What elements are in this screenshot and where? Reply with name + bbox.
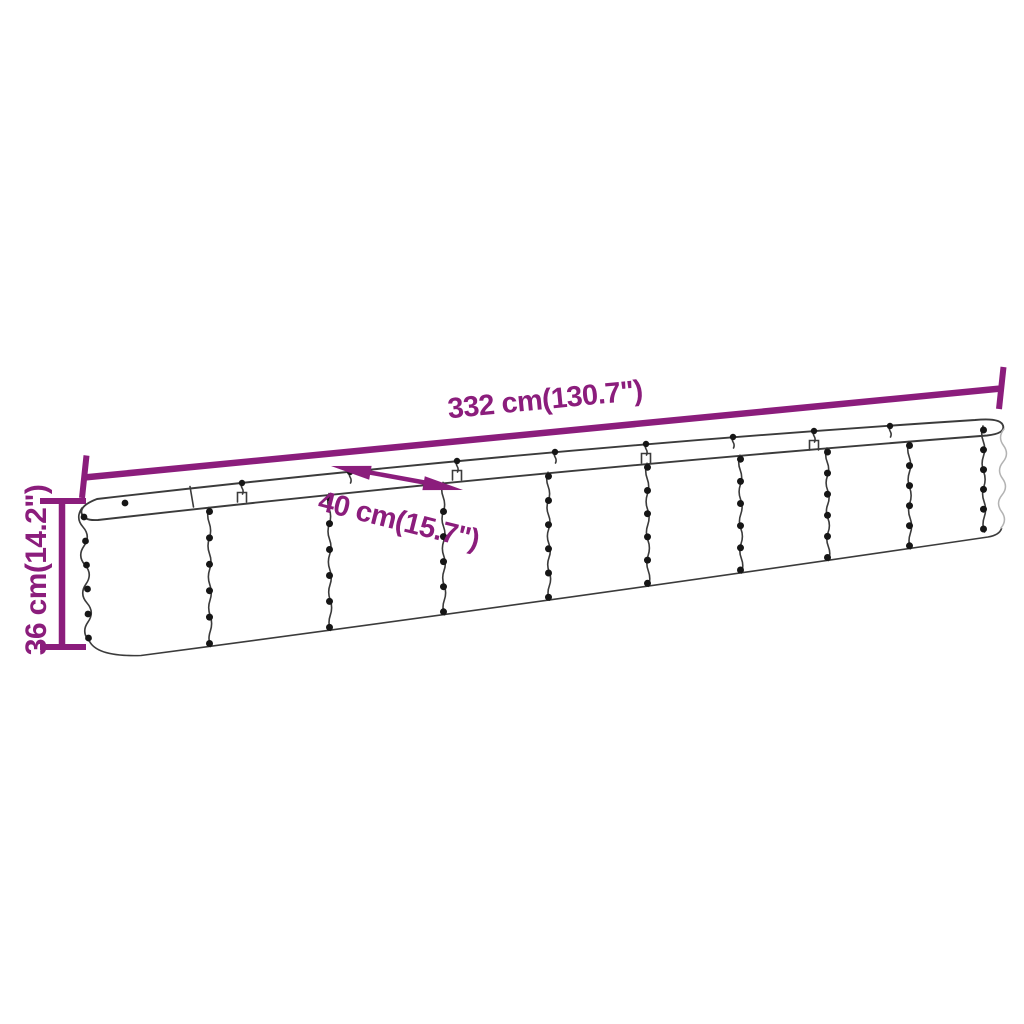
panel-seam (646, 463, 650, 586)
rivet-dot (545, 497, 552, 504)
rivet-dot (644, 533, 651, 540)
rivet-dot (440, 508, 447, 515)
length-dimension-right-cap (999, 367, 1004, 409)
rivet-dot (545, 570, 552, 577)
panel-seam (826, 448, 830, 561)
rivet-dot (906, 462, 913, 469)
rivet-dot (206, 508, 213, 515)
rivet-dot (737, 478, 744, 485)
rivet-dot (644, 464, 651, 471)
rivet-dot (644, 557, 651, 564)
rivet-dot (824, 449, 831, 456)
rivet-dot (206, 614, 213, 621)
planter-drawing (79, 419, 1007, 655)
rivet-dot (84, 586, 91, 593)
diagram-canvas: 332 cm(130.7") 40 cm(15.7") 36 cm(14.2") (0, 0, 1024, 1024)
rivet-dot (206, 561, 213, 568)
planter-bottom-edge (89, 529, 1002, 656)
panel-seam (208, 508, 212, 647)
rivet-dot (980, 506, 987, 513)
rivet-dot (326, 520, 333, 527)
rivet-dot (239, 480, 245, 486)
panel-seam (547, 472, 551, 600)
rivet-dot (85, 611, 92, 618)
rivet-dot (824, 554, 831, 561)
rivet-dot (906, 442, 913, 449)
rivet-dot (326, 572, 333, 579)
rivet-dot (545, 545, 552, 552)
rivet-dot (82, 538, 89, 545)
rivet-dot (906, 482, 913, 489)
rivet-dot (644, 487, 651, 494)
rivet-dot (980, 446, 987, 453)
length-dimension-label: 332 cm(130.7") (446, 375, 644, 426)
rivet-dot (83, 562, 90, 569)
rivet-dot (737, 544, 744, 551)
rivet-dot (206, 640, 213, 647)
rivet-dot (644, 510, 651, 517)
rivet-dot (326, 598, 333, 605)
rivet-dot (824, 470, 831, 477)
rivet-dot (906, 502, 913, 509)
rivet-dot (440, 583, 447, 590)
length-dimension-left-cap (82, 456, 87, 499)
rivet-dot (980, 526, 987, 533)
corrugated-left-edge (79, 508, 92, 641)
rivet-dot (980, 427, 987, 434)
rivet-dot (824, 533, 831, 540)
rivet-dot (440, 608, 447, 615)
rivet-dot (824, 491, 831, 498)
rivet-dot (545, 594, 552, 601)
corrugated-right-edge (999, 429, 1007, 528)
rivet-dot (326, 546, 333, 553)
rivet-dot (887, 423, 893, 429)
rivet-dot (906, 522, 913, 529)
rivet-dot (326, 624, 333, 631)
rivet-dot (122, 500, 129, 507)
panel-seam (739, 455, 743, 573)
width-dimension-label: 40 cm(15.7") (315, 486, 482, 557)
product-dimension-diagram: 332 cm(130.7") 40 cm(15.7") 36 cm(14.2") (0, 0, 1024, 1024)
rivet-dot (811, 428, 817, 434)
rivet-dot (737, 567, 744, 574)
rivet-dot (737, 456, 744, 463)
rivet-dot (545, 521, 552, 528)
rivet-dot (824, 512, 831, 519)
rivet-dot (81, 514, 88, 521)
rivet-dot (643, 441, 649, 447)
rivet-dot (730, 434, 736, 440)
rivet-dot (454, 458, 460, 464)
rivet-dot (906, 542, 913, 549)
rivet-dot (85, 635, 92, 642)
rivet-dot (737, 500, 744, 507)
rivet-dot (644, 580, 651, 587)
rivet-dot (440, 558, 447, 565)
panel-seam (982, 426, 986, 532)
rivet-dot (552, 449, 558, 455)
height-dimension-label: 36 cm(14.2") (20, 485, 53, 655)
rivet-dot (206, 534, 213, 541)
rivet-dot (980, 486, 987, 493)
rivet-dot (980, 466, 987, 473)
panel-seam (908, 442, 912, 549)
rivet-dot (206, 587, 213, 594)
rivet-dot (545, 473, 552, 480)
rivet-dot (737, 522, 744, 529)
